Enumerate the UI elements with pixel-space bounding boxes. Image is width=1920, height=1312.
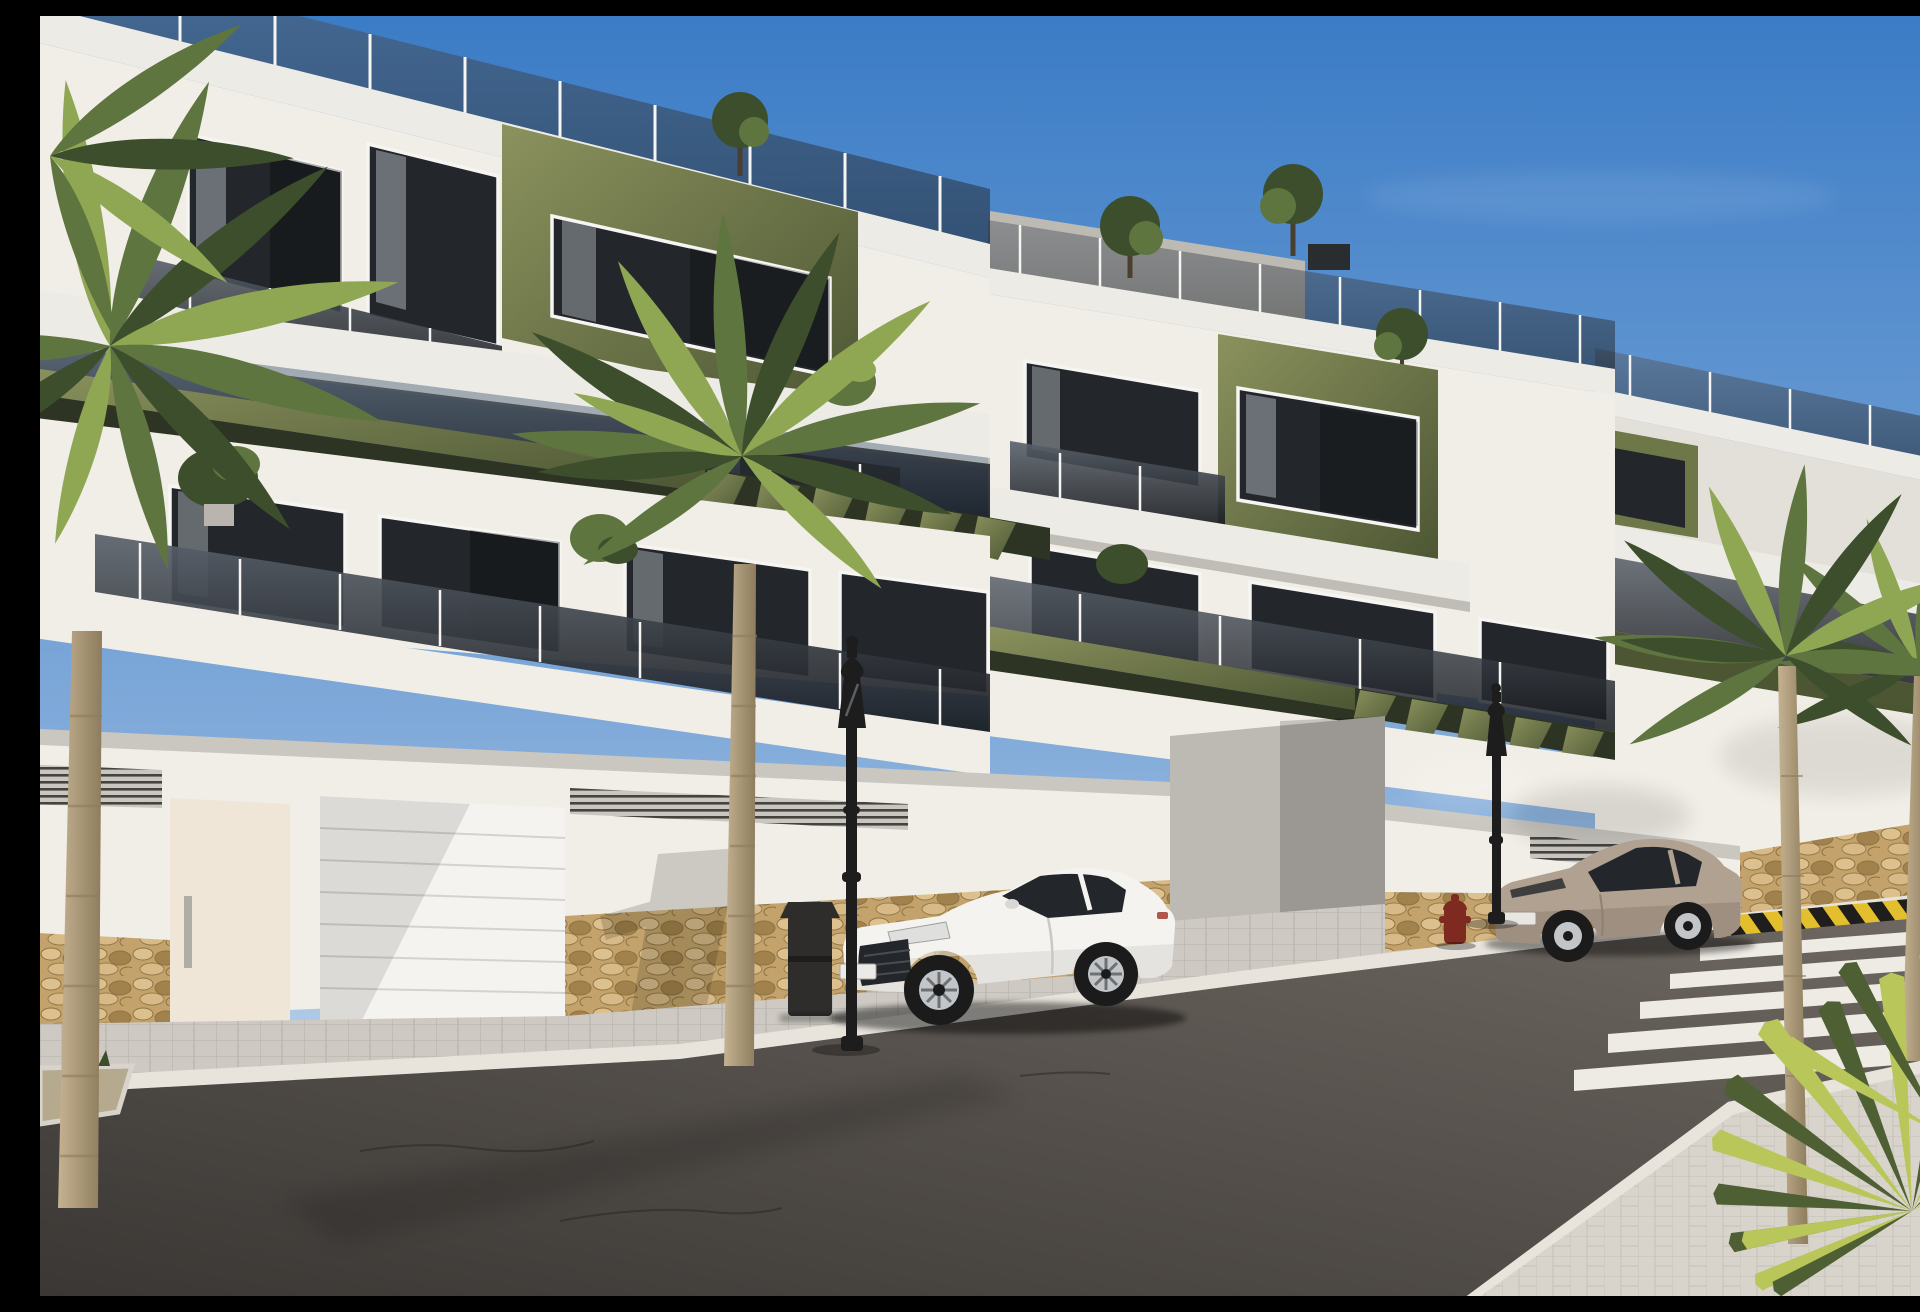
- far-window: [1614, 448, 1685, 528]
- garage-door: [320, 796, 565, 1028]
- architectural-render: Street-level 3D rendering of a modern th…: [40, 16, 1920, 1296]
- mid-curtain: [1246, 394, 1276, 498]
- white-car-plate: [840, 964, 876, 979]
- rooftop-box: [1308, 244, 1350, 270]
- scene-canvas: [40, 16, 1920, 1296]
- door-handle: [184, 896, 192, 968]
- white-car-taillight: [1157, 912, 1168, 919]
